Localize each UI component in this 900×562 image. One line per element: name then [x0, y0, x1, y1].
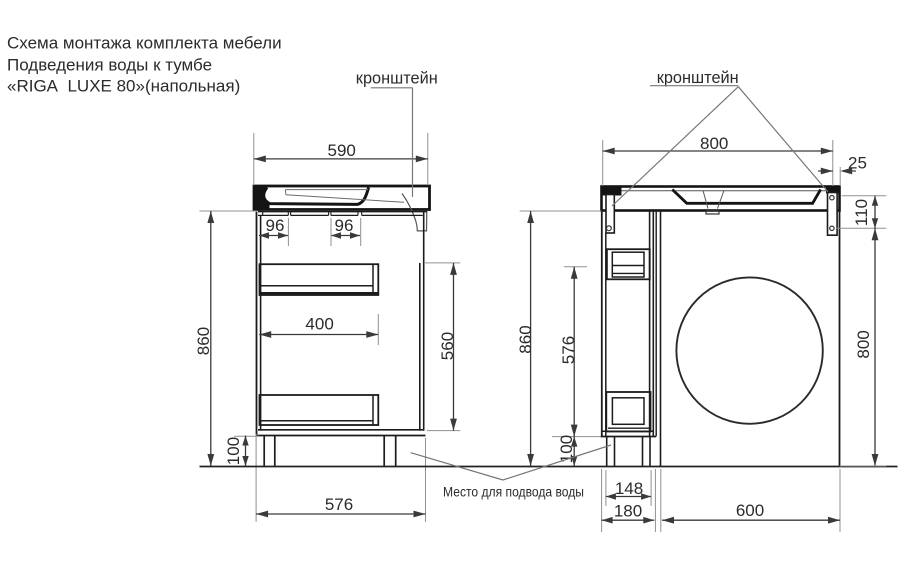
svg-text:«RIGA LUXE 80»(напольная): «RIGA LUXE 80»(напольная) [7, 77, 240, 96]
svg-text:96: 96 [266, 216, 285, 235]
svg-text:180: 180 [614, 502, 642, 521]
svg-text:Место для подвода воды: Место для подвода воды [443, 484, 584, 500]
svg-text:590: 590 [328, 141, 356, 160]
svg-text:560: 560 [438, 332, 457, 360]
svg-text:25: 25 [848, 154, 867, 173]
svg-text:110: 110 [852, 199, 871, 226]
svg-text:800: 800 [700, 134, 728, 153]
svg-text:600: 600 [736, 501, 764, 520]
svg-text:860: 860 [194, 327, 213, 355]
svg-text:100: 100 [224, 437, 243, 465]
svg-text:кронштейн: кронштейн [657, 68, 739, 87]
svg-text:Схема монтажа комплекта мебели: Схема монтажа комплекта мебели [7, 34, 282, 53]
svg-text:148: 148 [615, 479, 643, 498]
svg-text:576: 576 [559, 336, 578, 364]
svg-text:576: 576 [325, 495, 353, 514]
svg-text:860: 860 [516, 325, 535, 353]
svg-text:96: 96 [335, 216, 354, 235]
svg-text:800: 800 [854, 330, 873, 358]
svg-text:Подведения воды к тумбе: Подведения воды к тумбе [7, 56, 212, 75]
svg-text:кронштейн: кронштейн [356, 68, 438, 87]
svg-text:400: 400 [305, 315, 333, 334]
